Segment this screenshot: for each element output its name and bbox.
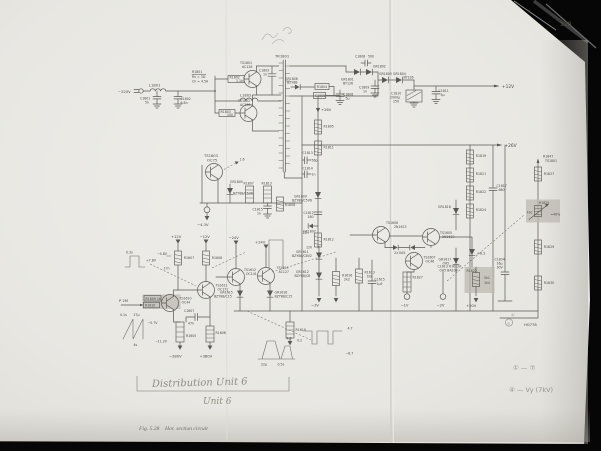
lbl-r1821: R1821 — [476, 172, 486, 176]
lbl-ts1803t: OC75 — [207, 158, 218, 162]
lbl-c1805: C1805 — [315, 94, 325, 98]
lbl-c1817v: 680 — [499, 188, 505, 192]
lbl-w2c: −11.2V — [155, 340, 168, 344]
lbl-c1808: C1808 — [355, 55, 365, 59]
lbl-ts1612t: OC141 — [246, 272, 257, 276]
lbl-v12s: 12V — [306, 246, 313, 250]
lbl-c1803v: 1n — [263, 73, 267, 77]
lbl-w3a: 22μ — [261, 362, 267, 366]
handwriting-note1: ① — ⑦ — [513, 364, 535, 372]
lbl-r1610: R1610 — [145, 304, 155, 308]
lbl-r1830: R1830 — [544, 281, 554, 285]
lbl-gr1611t: BZY88/C8V2 — [292, 254, 312, 258]
lbl-oa5: 2×OA5 — [394, 251, 405, 255]
lbl-w1b: 17n — [164, 267, 170, 271]
lbl-r1622b: 1k4 — [484, 281, 490, 285]
lbl-gr1616t: BZY88/C15 — [275, 295, 293, 299]
lbl-sup2: −12V — [200, 235, 211, 239]
lbl-c1814v: 1n — [312, 173, 316, 177]
lbl-gr1806t: BZY88 — [287, 81, 297, 85]
lbl-w3c: 4.8 — [287, 337, 292, 341]
lbl-r1812: R1812 — [324, 238, 334, 242]
figure-caption: Fig. 5.28 Hor. section circuit — [138, 426, 208, 432]
lbl-w4a: 4.7 — [348, 327, 353, 331]
lbl-c1806v: 5μ — [346, 97, 350, 101]
lbl-r1813: R1813 — [262, 182, 272, 186]
lbl-gr1615t: BZY88/C15 — [214, 295, 232, 299]
lbl-pct40: ≈40% — [551, 213, 561, 217]
lbl-r1622: R1622 — [467, 269, 477, 273]
lbl-gr1804t: BY126 — [404, 76, 414, 80]
lbl-c1811v: 5μ — [441, 93, 445, 97]
lbl-c1812v: 180 — [308, 215, 314, 219]
lbl-vm3: −3V — [311, 304, 319, 308]
lbl-l1802: L1802 — [240, 94, 251, 98]
lbl-c1802v: 6.8n — [181, 101, 188, 105]
lbl-r1803v: 100 — [227, 113, 233, 117]
lbl-gr1809t: BZY88/C5V6 — [292, 199, 312, 203]
lbl-w1a: +7.8V — [146, 259, 157, 263]
lbl-gr1805: GR1805 — [230, 180, 243, 184]
lbl-ts1610t: OC44 — [182, 301, 191, 305]
lbl-r1607: R1607 — [184, 256, 194, 260]
lbl-gr1807: GR1807 — [303, 230, 316, 234]
lbl-gr1818: GR1818 — [438, 205, 451, 209]
lbl-out26: +26V — [505, 143, 517, 149]
lbl-l1801: L1801 — [149, 84, 160, 88]
lbl-tr1801: TR1801 — [274, 55, 289, 59]
lbl-ts1613t: AC127 — [279, 270, 289, 274]
lbl-r1801b: Ch = 4.5A — [192, 79, 209, 83]
lbl-c1813v: 56p — [312, 159, 318, 163]
lbl-w4b: −6.7 — [346, 352, 354, 356]
lbl-r1829: R1829 — [544, 245, 554, 249]
lbl-w2a: −5.7V — [148, 321, 159, 325]
lbl-mains: ~220V — [118, 90, 131, 94]
paper-sheet — [0, 0, 590, 444]
lbl-ts1801t: AC128 — [242, 65, 252, 69]
lbl-c1607: C1607 — [184, 309, 194, 313]
lbl-r1606: R1606 — [216, 331, 226, 335]
lbl-w2t: 0.1s — [120, 313, 127, 317]
lbl-c1809v: 1n — [363, 90, 367, 94]
lbl-w2b: 4s — [134, 343, 138, 347]
schematic-scan: 128 ~220V L1801 C1801 5n C1802 6.8n R180… — [0, 0, 601, 451]
lbl-r1819: R1819 — [476, 154, 486, 158]
handwriting-unit-sub: Unit 6 — [203, 397, 232, 407]
lbl-vp20: +20V — [466, 304, 477, 308]
lbl-foc: Foc — [527, 211, 533, 215]
lbl-vm280: −280V — [169, 355, 182, 359]
lbl-c1813: C1813 — [303, 151, 313, 155]
lbl-gr1803: GR1803 — [379, 72, 392, 76]
lbl-c1607v: 47n — [188, 322, 194, 326]
lbl-gr1802: GR1802 — [373, 65, 386, 69]
lbl-r1811: R1811 — [324, 146, 334, 150]
lbl-hq: HG778 — [524, 323, 537, 327]
lbl-c1814: C1814 — [303, 167, 313, 171]
caption-fig-number: Fig. 5.28 — [138, 426, 160, 432]
lbl-gr1801t: BY126 — [343, 82, 353, 86]
lbl-r1804: R1804 — [317, 85, 327, 89]
lbl-w4c: 0.2 — [297, 339, 302, 343]
lbl-w1t: 0.3s — [126, 251, 133, 255]
lbl-r1605: R1605 — [186, 334, 196, 338]
lbl-va: −4.3V — [197, 223, 209, 227]
lbl-vm1: −1V — [401, 303, 409, 307]
lbl-r1807: R1807 — [244, 182, 254, 186]
lbl-r1609: R1609 1k — [146, 297, 161, 301]
lbl-r1801: R1801 — [192, 70, 202, 74]
lbl-r1825: R1825 — [539, 201, 549, 205]
lbl-r1627: R1627 — [413, 276, 423, 280]
lbl-w3b: 0.5s — [278, 362, 285, 366]
lbl-r1616v: 2k2 — [344, 278, 350, 282]
lbl-c1810w: 25V — [393, 100, 400, 104]
lbl-p16: 1.6 — [240, 158, 245, 162]
lbl-p2m: P 2M — [119, 299, 128, 303]
lbl-gr1805t: BZY88/C5V6 — [233, 192, 253, 196]
lbl-c1815v: 1n — [257, 212, 261, 216]
lbl-c1834w: 30V — [497, 266, 504, 270]
lbl-sup4: +24V — [255, 241, 266, 245]
lbl-r1847t: TS1801 — [544, 159, 557, 163]
lbl-ts1607t: OC46 — [426, 259, 435, 263]
lbl-sup3: −24V — [229, 236, 240, 240]
lbl-r1822: R1822 — [476, 190, 486, 194]
lbl-r1802v: 1.1k — [236, 79, 243, 83]
lbl-ts1606t: 2N1613 — [394, 225, 407, 229]
photo-of-schematic-page: 128 ~220V L1801 C1801 5n C1802 6.8n R180… — [0, 0, 601, 451]
lbl-vm48: −4.8V — [157, 252, 168, 256]
lbl-r1608: R1608 — [212, 256, 222, 260]
lbl-r1827: R1827 — [544, 172, 554, 176]
lbl-vm2: −2V — [437, 303, 445, 307]
page-number: 128 — [560, 21, 572, 28]
lbl-out12: +12V — [502, 84, 514, 90]
lbl-sup1: +12V — [171, 235, 182, 239]
lbl-r1619: R1619 — [296, 328, 306, 332]
lbl-r1805: R1805 — [324, 125, 334, 129]
lbl-c1808v: 500 — [368, 55, 374, 59]
lbl-c1801v: 5n — [145, 101, 149, 105]
lbl-r1824: R1824 — [476, 208, 486, 212]
lbl-r1808: R1808 — [285, 203, 295, 207]
lbl-v26: +26V — [321, 108, 332, 112]
lbl-gr1612t: BZY88/C8 — [295, 274, 311, 278]
lbl-r1613v: 1k8 — [367, 275, 373, 279]
lbl-dense2: OA5 BA208 — [440, 269, 458, 273]
handwriting-note2: ④ — Vy (7kV) — [509, 386, 553, 394]
lbl-r1622a: 5k1 — [484, 276, 490, 280]
lbl-vp380: +380V — [200, 355, 213, 359]
lbl-c1615v: 1μ5 — [377, 282, 383, 286]
caption-title: Hor. section circuit — [164, 426, 208, 432]
lbl-zp62: +6.2 — [477, 252, 486, 256]
lbl-w2u: 27μ — [134, 313, 140, 317]
